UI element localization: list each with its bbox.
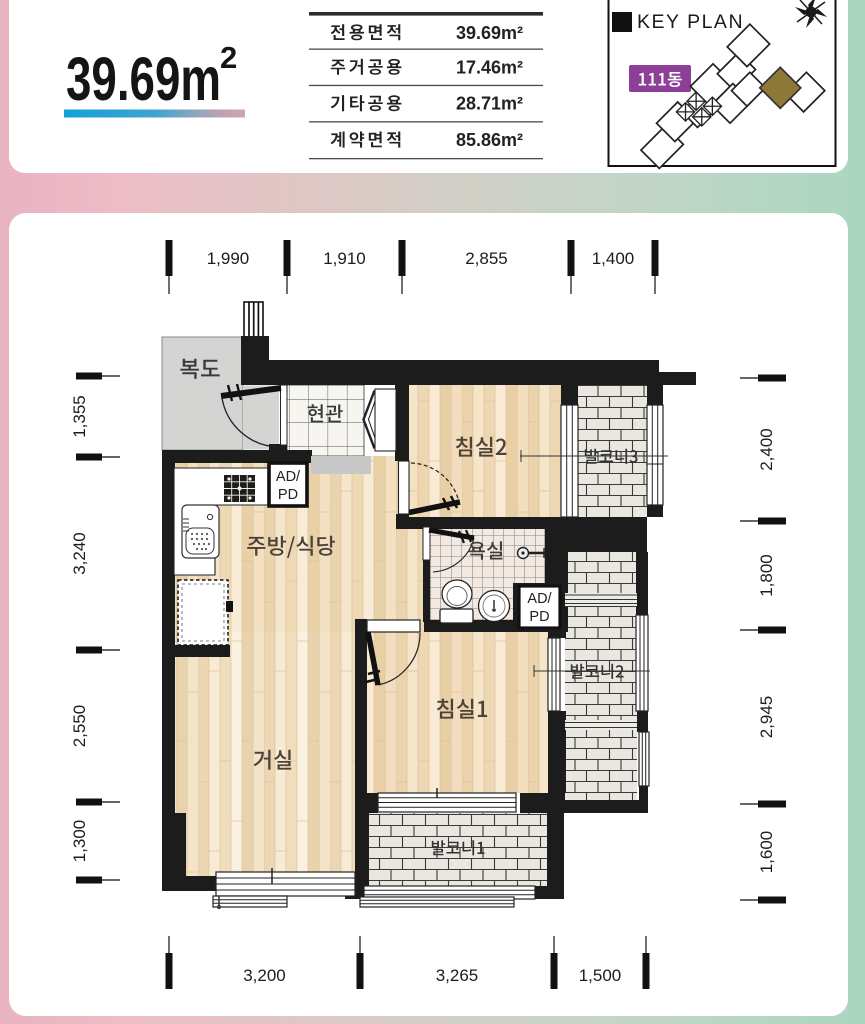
svg-text:2,550: 2,550 <box>70 705 89 748</box>
svg-text:1,910: 1,910 <box>323 249 366 268</box>
svg-text:39.69m²: 39.69m² <box>456 23 523 43</box>
svg-text:PD: PD <box>529 609 549 625</box>
svg-text:1,300: 1,300 <box>70 820 89 863</box>
svg-text:1,500: 1,500 <box>579 966 622 985</box>
svg-text:39.69m: 39.69m <box>66 45 221 113</box>
svg-text:1,355: 1,355 <box>70 395 89 438</box>
svg-text:28.71m²: 28.71m² <box>456 94 523 114</box>
svg-text:AD/: AD/ <box>527 591 552 607</box>
svg-text:AD/: AD/ <box>276 469 301 485</box>
svg-text:3,265: 3,265 <box>436 966 479 985</box>
svg-text:17.46m²: 17.46m² <box>456 57 523 77</box>
svg-text:2,945: 2,945 <box>757 696 776 739</box>
svg-text:1,600: 1,600 <box>757 831 776 874</box>
svg-text:1,990: 1,990 <box>207 249 250 268</box>
svg-text:KEY PLAN: KEY PLAN <box>637 11 744 33</box>
svg-text:1,800: 1,800 <box>757 554 776 597</box>
svg-text:2,400: 2,400 <box>757 428 776 471</box>
svg-text:1,400: 1,400 <box>592 249 635 268</box>
svg-text:3,240: 3,240 <box>70 532 89 575</box>
svg-text:PD: PD <box>278 487 298 503</box>
svg-text:2: 2 <box>220 40 237 75</box>
svg-text:2,855: 2,855 <box>465 249 508 268</box>
svg-text:85.86m²: 85.86m² <box>456 130 523 150</box>
svg-text:3,200: 3,200 <box>243 966 286 985</box>
